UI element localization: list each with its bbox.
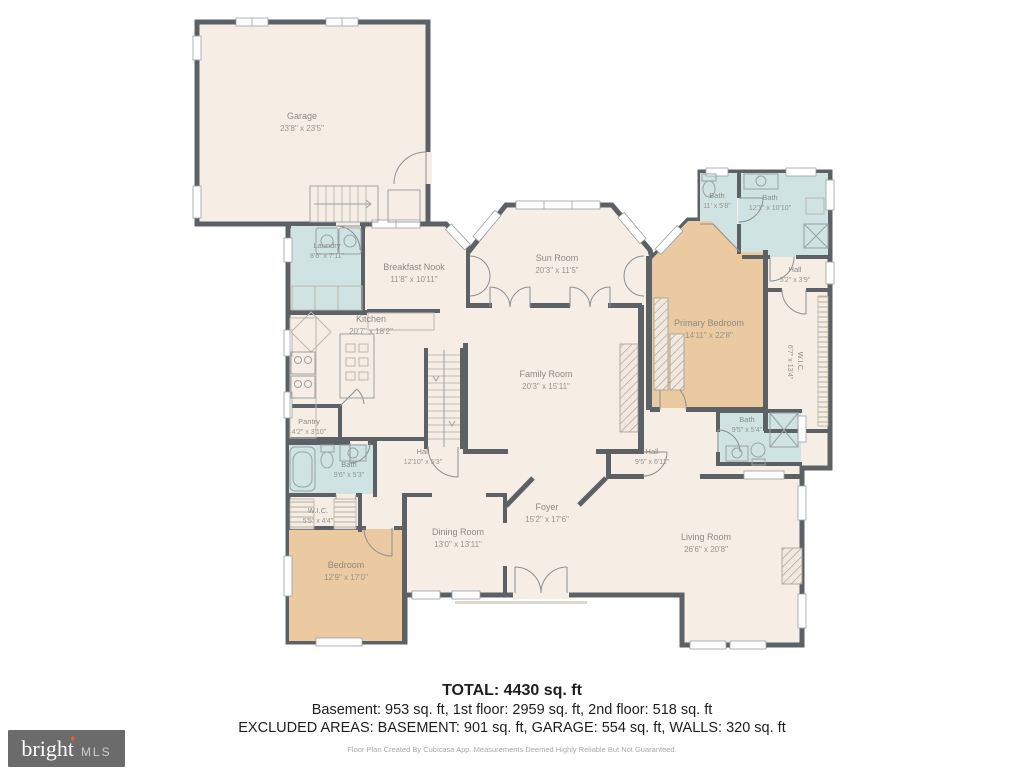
- svg-text:Dining Room: Dining Room: [432, 527, 484, 537]
- svg-text:26'6" x 20'8": 26'6" x 20'8": [684, 545, 728, 554]
- svg-text:9'5" x 5'4": 9'5" x 5'4": [732, 427, 763, 434]
- svg-text:12'9" x 17'0": 12'9" x 17'0": [324, 573, 368, 582]
- porch-step: [455, 601, 587, 604]
- total-area: TOTAL: 4430 sq. ft: [0, 682, 1024, 700]
- svg-text:Laundry: Laundry: [313, 241, 340, 250]
- svg-text:20'3" x 15'11": 20'3" x 15'11": [522, 382, 570, 391]
- svg-text:Garage: Garage: [287, 111, 317, 121]
- svg-text:13'0" x 13'11": 13'0" x 13'11": [434, 540, 482, 549]
- svg-text:9'6" x 5'3": 9'6" x 5'3": [334, 472, 365, 479]
- svg-text:Hall: Hall: [646, 447, 659, 456]
- logo-star-icon: ✦: [69, 734, 77, 745]
- svg-text:20'3" x 11'5": 20'3" x 11'5": [535, 266, 578, 275]
- svg-text:6'7" x 13'4": 6'7" x 13'4": [786, 345, 793, 380]
- wic-right-rail: [818, 296, 828, 426]
- family-room-fireplace: [620, 344, 638, 432]
- svg-text:5'5" x 4'4": 5'5" x 4'4": [303, 518, 334, 525]
- svg-text:Bath: Bath: [341, 460, 356, 469]
- svg-text:W.I.C.: W.I.C.: [308, 506, 328, 515]
- svg-text:Living Room: Living Room: [681, 532, 731, 542]
- room-bedroom: [289, 529, 403, 641]
- svg-text:Hall: Hall: [417, 447, 430, 456]
- bright-mls-logo: bright✦ MLS: [8, 730, 125, 767]
- svg-text:Family Room: Family Room: [519, 369, 572, 379]
- svg-text:Primary Bedroom: Primary Bedroom: [674, 318, 744, 328]
- svg-text:Bedroom: Bedroom: [328, 560, 365, 570]
- room-bath-top-large: [738, 173, 828, 257]
- svg-text:11'8" x 10'11": 11'8" x 10'11": [390, 275, 437, 284]
- svg-text:11' x 5'8": 11' x 5'8": [703, 203, 731, 210]
- svg-text:Breakfast Nook: Breakfast Nook: [383, 262, 445, 272]
- svg-text:9'5" x 6'11": 9'5" x 6'11": [635, 459, 669, 466]
- svg-text:14'11" x 22'8": 14'11" x 22'8": [685, 331, 733, 340]
- svg-text:Sun Room: Sun Room: [536, 253, 579, 263]
- svg-text:20'7" x 18'2": 20'7" x 18'2": [349, 327, 393, 336]
- svg-text:W.I.C.: W.I.C.: [796, 352, 805, 372]
- floor-plan-page: Garage23'8" x 23'5" Laundry8'6" x 7'11" …: [0, 0, 1024, 768]
- living-room-fireplace: [782, 548, 802, 584]
- svg-text:4'2" x 3'10": 4'2" x 3'10": [292, 429, 327, 436]
- svg-text:Hall: Hall: [789, 265, 802, 274]
- logo-brand: bright✦: [21, 736, 74, 762]
- svg-text:8'6" x 7'11": 8'6" x 7'11": [310, 253, 344, 260]
- svg-text:Bath: Bath: [762, 193, 777, 202]
- excluded-areas: EXCLUDED AREAS: BASEMENT: 901 sq. ft, GA…: [0, 720, 1024, 736]
- room-laundry: [291, 226, 362, 312]
- floor-areas: Basement: 953 sq. ft, 1st floor: 2959 sq…: [0, 702, 1024, 718]
- svg-text:Bath: Bath: [739, 415, 754, 424]
- svg-text:Bath: Bath: [709, 191, 724, 200]
- logo-suffix: MLS: [81, 739, 112, 759]
- svg-text:15'2" x 17'6": 15'2" x 17'6": [525, 515, 569, 524]
- svg-text:12'1" x 10'10": 12'1" x 10'10": [749, 205, 792, 212]
- svg-text:12'10" x 5'3": 12'10" x 5'3": [404, 459, 443, 466]
- svg-text:23'8" x 23'5": 23'8" x 23'5": [280, 124, 324, 133]
- room-garage: [197, 22, 428, 224]
- svg-text:Foyer: Foyer: [535, 502, 558, 512]
- disclaimer: Floor Plan Created By Cubicasa App. Meas…: [0, 745, 1024, 754]
- area-summary: TOTAL: 4430 sq. ft Basement: 953 sq. ft,…: [0, 682, 1024, 754]
- floor-plan-drawing: Garage23'8" x 23'5" Laundry8'6" x 7'11" …: [0, 0, 1024, 768]
- svg-text:5'2" x 3'9": 5'2" x 3'9": [780, 277, 811, 284]
- svg-text:Kitchen: Kitchen: [356, 314, 386, 324]
- svg-text:Pantry: Pantry: [298, 417, 320, 426]
